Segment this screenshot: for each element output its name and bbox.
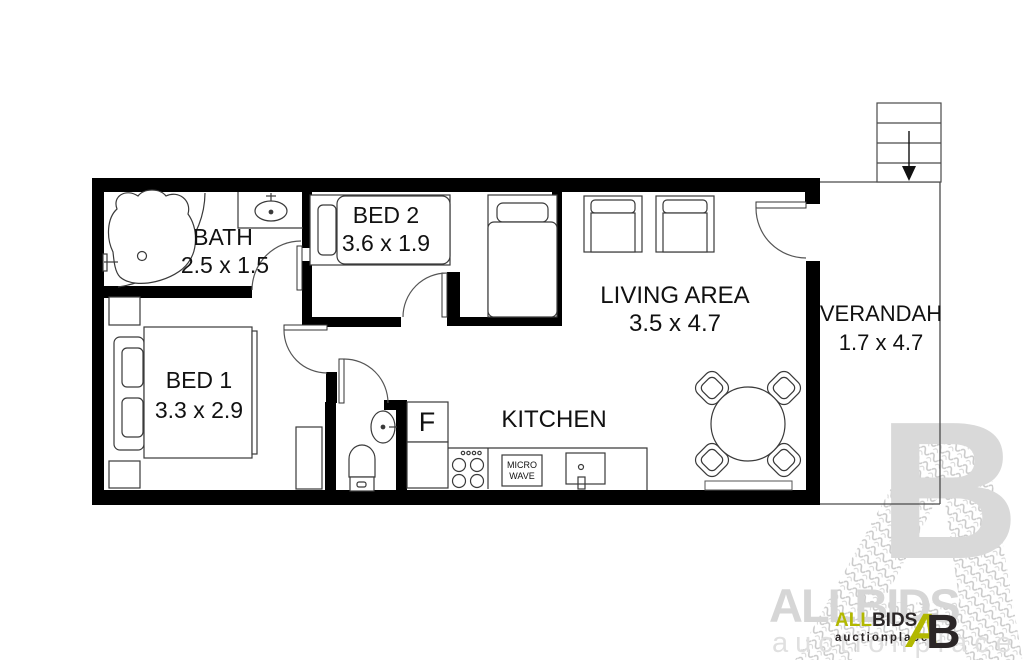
microwave-label-line1: MICRO <box>507 460 537 470</box>
watermark-monogram-b: B <box>878 381 1020 600</box>
logo-all: ALL <box>835 610 872 631</box>
verandah-door-arc <box>756 208 806 258</box>
verandah-door-panel <box>756 202 806 208</box>
bed2-door-panel <box>442 273 447 317</box>
wc-door-arc <box>344 359 388 403</box>
logo-allbids-text: ALLBIDS <box>835 610 917 631</box>
floorplan-page: A B ALLBIDS auctionplace <box>0 0 1024 660</box>
room-label-living: LIVING AREA <box>600 282 749 309</box>
window <box>705 481 792 490</box>
room-label-bath: BATH <box>193 224 253 250</box>
bed1-door-panel <box>284 325 327 330</box>
wc-door-panel <box>339 359 344 403</box>
bed1-door-arc <box>284 330 327 373</box>
armchair-icon <box>584 196 642 252</box>
dining-table-icon <box>711 387 785 461</box>
room-dims-bath: 2.5 x 1.5 <box>181 252 269 278</box>
microwave-label-line2: WAVE <box>509 471 535 481</box>
room-dims-living: 3.5 x 4.7 <box>629 310 721 337</box>
room-label-verandah: VERANDAH <box>820 301 942 326</box>
vanity-sink-icon <box>238 192 303 228</box>
room-label-bed2: BED 2 <box>353 202 419 228</box>
floorplan-svg: A B ALLBIDS auctionplace <box>0 0 1024 660</box>
room-label-kitchen: KITCHEN <box>501 406 606 433</box>
wc-basin-icon <box>371 411 397 443</box>
kitchen-cabinet <box>407 442 448 488</box>
stove-icon <box>453 448 489 489</box>
toilet-icon <box>349 445 375 491</box>
kitchen-sink-icon <box>566 453 605 489</box>
bed2-door-arc <box>403 273 447 317</box>
wardrobe-icon <box>109 461 140 488</box>
room-dims-verandah: 1.7 x 4.7 <box>839 330 923 355</box>
wc-fixtures <box>349 411 397 491</box>
cabinet-icon <box>296 427 322 489</box>
room-dims-bed1: 3.3 x 2.9 <box>155 397 243 423</box>
logo-monogram-b: B <box>926 606 961 659</box>
bed2-furniture <box>310 195 557 317</box>
wardrobe-icon <box>109 297 140 325</box>
fridge-label: F <box>419 407 436 437</box>
armchair-icon <box>656 196 714 252</box>
bath-door-panel <box>297 246 302 290</box>
living-furniture <box>584 196 804 480</box>
logo-monogram-icon: A B <box>905 605 961 659</box>
room-dims-bed2: 3.6 x 1.9 <box>342 230 430 256</box>
room-label-bed1: BED 1 <box>166 367 232 393</box>
single-bed-icon <box>488 195 557 317</box>
